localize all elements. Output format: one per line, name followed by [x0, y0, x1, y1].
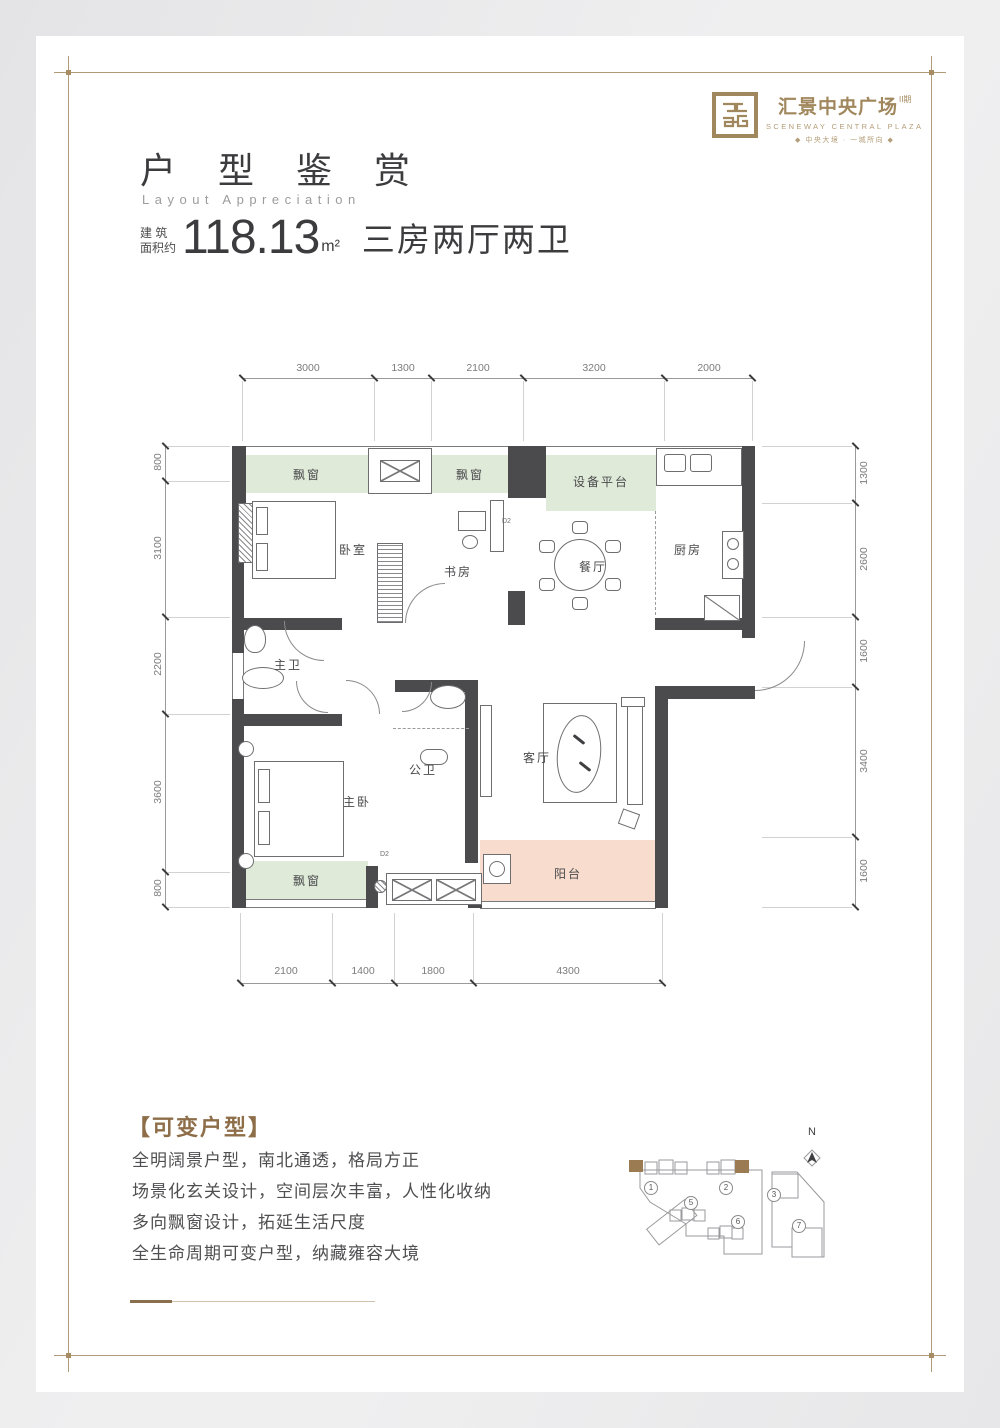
drain-icon [374, 880, 387, 893]
building-number: 3 [767, 1188, 781, 1202]
page-title: 户 型 鉴 赏 [140, 142, 426, 194]
wall [232, 446, 246, 504]
brand-seal-icon [712, 92, 758, 143]
pillow [256, 507, 268, 535]
bath-sink [430, 685, 466, 709]
dim-label: 1300 [858, 453, 870, 493]
area-prefix: 建 筑 面积约 [140, 226, 176, 256]
ext-line [523, 381, 524, 441]
kitchen-dashed-divider [655, 511, 656, 615]
feature-line: 多向飘窗设计，拓延生活尺度 [132, 1214, 492, 1231]
building-number: 7 [792, 1219, 806, 1233]
pillow [258, 811, 270, 845]
desk [458, 511, 486, 531]
frame-corner-dot [66, 1353, 71, 1358]
room-label-study: 书房 [428, 563, 488, 580]
highlight-building [629, 1160, 643, 1172]
frame-corner-dot [929, 70, 934, 75]
room-label-equipment-platform: 设备平台 [571, 473, 631, 490]
ext-line [762, 687, 852, 688]
frame-line-right [931, 56, 932, 1372]
floor-plan: 3000 1300 2100 3200 2000 2100 1400 1800 … [150, 353, 890, 1033]
dim-label: 1300 [373, 362, 433, 374]
footer-rule-thin [172, 1301, 375, 1302]
ext-line [168, 714, 230, 715]
area-value: 118.13 [182, 216, 319, 260]
burner [727, 558, 739, 570]
side-table [618, 808, 640, 829]
guest-bath-dashed-line [393, 728, 469, 729]
features-heading: 【可变户型】 [128, 1110, 272, 1142]
area-unit: m² [321, 238, 340, 256]
ext-line [240, 913, 241, 981]
study-door-arc [405, 583, 445, 623]
wall [508, 446, 546, 498]
ext-line [662, 913, 663, 981]
room-label-living: 客厅 [507, 749, 567, 766]
door-tag: D2 [380, 851, 389, 858]
site-plan: N 1 2 3 5 6 7 [612, 1132, 882, 1282]
pillow [256, 543, 268, 571]
door-tag: D2 [502, 518, 511, 525]
tv-console [480, 705, 492, 797]
brand-subtitle: SCENEWAY CENTRAL PLAZA [766, 122, 923, 131]
wall [655, 698, 668, 908]
sink [664, 454, 686, 472]
footer-rule-thick [130, 1300, 172, 1303]
dim-line-left [165, 446, 166, 907]
chair [539, 540, 555, 553]
ext-line [168, 872, 230, 873]
chair [539, 578, 555, 591]
feature-line: 场景化玄关设计，空间层次丰富，人性化收纳 [132, 1183, 492, 1200]
layout-type: 三房两厅两卫 [362, 220, 572, 260]
sofa-arm [621, 697, 645, 707]
chair [572, 521, 588, 534]
dim-label: 2000 [679, 362, 739, 374]
burner [727, 538, 739, 550]
frame-line-bottom [54, 1355, 946, 1356]
dim-label: 1600 [858, 631, 870, 671]
chair [572, 597, 588, 610]
building-number: 6 [731, 1215, 745, 1229]
brand-tagline: ◆ 中央大境 · 一城所向 ◆ [795, 135, 894, 145]
room-label-master-bath: 主卫 [258, 656, 318, 673]
frame-corner-dot [929, 1353, 934, 1358]
dim-label: 3100 [152, 528, 164, 568]
ext-line [168, 617, 230, 618]
sink [690, 454, 712, 472]
frame-corner-dot [66, 70, 71, 75]
master-bedroom-door-arc [346, 680, 380, 714]
building-number: 2 [719, 1181, 733, 1195]
wall [232, 866, 246, 908]
room-label-bay-window: 飘窗 [277, 466, 337, 483]
page-subtitle: Layout Appreciation [142, 192, 361, 207]
dim-label: 1800 [403, 965, 463, 977]
room-label-bedroom: 卧室 [323, 541, 383, 558]
window-line [480, 901, 656, 909]
wall [232, 714, 342, 726]
building-number: 5 [684, 1196, 698, 1210]
shower [284, 621, 324, 661]
ext-line [762, 446, 852, 447]
footer-rule [130, 1300, 375, 1303]
site-plan-drawing [612, 1132, 882, 1282]
ext-line [762, 907, 852, 908]
chair [462, 535, 478, 549]
dim-label: 3600 [152, 772, 164, 812]
ext-line [374, 381, 375, 441]
dim-label: 2100 [256, 965, 316, 977]
ext-line [762, 503, 852, 504]
brand-logo: 汇景中央广场 II期 SCENEWAY CENTRAL PLAZA ◆ 中央大境… [712, 92, 923, 145]
chair [605, 578, 621, 591]
ac-unit-icon [392, 879, 432, 901]
dim-line-top [242, 378, 753, 379]
features-list: 全明阔景户型，南北通透，格局方正 场景化玄关设计，空间层次丰富，人性化收纳 多向… [132, 1152, 492, 1276]
ext-line [473, 913, 474, 981]
ac-unit-icon [436, 879, 476, 901]
washing-machine-drum [489, 861, 505, 877]
ext-line [168, 481, 230, 482]
dim-label: 4300 [538, 965, 598, 977]
master-bath-door-arc [296, 681, 328, 713]
area-prefix-line1: 建 筑 [140, 226, 176, 241]
nightstand [238, 741, 254, 757]
room-label-bay-window: 飘窗 [277, 872, 337, 889]
dim-label: 800 [152, 442, 164, 482]
ext-line [394, 913, 395, 981]
dim-label: 2600 [858, 539, 870, 579]
ext-line [431, 381, 432, 441]
frame-line-left [68, 56, 69, 1372]
entry-door-arc [755, 641, 805, 691]
brand-title: 汇景中央广场 [778, 92, 898, 119]
room-label-balcony: 阳台 [538, 865, 598, 882]
north-label: N [802, 1126, 822, 1138]
wall [655, 686, 755, 699]
building-number: 1 [644, 1181, 658, 1195]
ext-line [168, 907, 230, 908]
highlight-building [735, 1160, 749, 1173]
wall [508, 591, 525, 625]
room-label-master-bedroom: 主卧 [327, 793, 387, 810]
feature-line: 全生命周期可变户型，纳藏雍容大境 [132, 1245, 492, 1262]
ext-line [168, 446, 230, 447]
brand-phase: II期 [899, 94, 911, 105]
dim-label: 1400 [333, 965, 393, 977]
frame-line-top [54, 72, 946, 73]
ext-line [762, 837, 852, 838]
wall [465, 683, 478, 863]
dim-label: 800 [152, 868, 164, 908]
area-row: 建 筑 面积约 118.13 m² 三房两厅两卫 [140, 216, 572, 260]
brand-logo-text: 汇景中央广场 II期 SCENEWAY CENTRAL PLAZA ◆ 中央大境… [766, 92, 923, 145]
bookshelf [490, 500, 504, 552]
room-label-kitchen: 厨房 [658, 541, 718, 558]
toilet [244, 625, 266, 653]
ac-unit-icon [380, 460, 420, 482]
pillow [258, 769, 270, 803]
guest-bath-door-arc [402, 682, 432, 712]
dim-label: 3200 [564, 362, 624, 374]
room-label-bay-window: 飘窗 [440, 466, 500, 483]
room-label-guest-bath: 公卫 [393, 761, 453, 778]
feature-line: 全明阔景户型，南北通透，格局方正 [132, 1152, 492, 1169]
dim-label: 2200 [152, 644, 164, 684]
ext-line [664, 381, 665, 441]
dim-label: 3000 [278, 362, 338, 374]
ext-line [242, 381, 243, 441]
nightstand [238, 853, 254, 869]
dim-label: 3400 [858, 741, 870, 781]
dim-label: 2100 [448, 362, 508, 374]
room-label-dining: 餐厅 [563, 558, 623, 575]
ext-line [762, 617, 852, 618]
sofa [627, 705, 643, 805]
dim-line-bottom [240, 983, 663, 984]
window-line [246, 899, 368, 908]
chair [605, 540, 621, 553]
dim-label: 1600 [858, 851, 870, 891]
fridge [704, 595, 740, 621]
ext-line [752, 381, 753, 441]
area-prefix-line2: 面积约 [140, 241, 176, 256]
